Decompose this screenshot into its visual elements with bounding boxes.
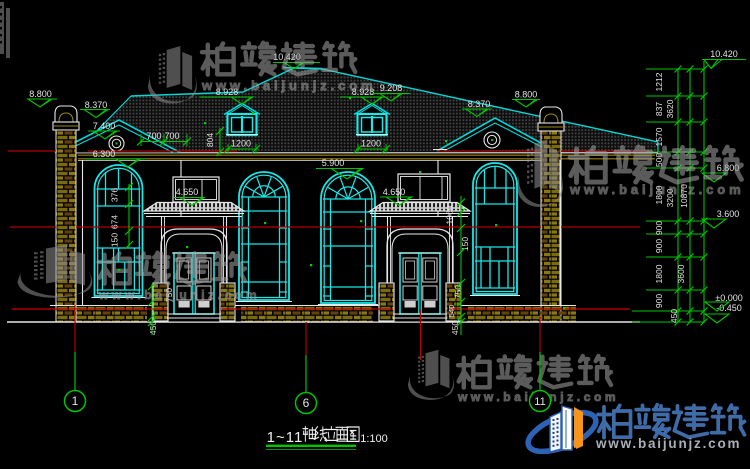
svg-text:1:100: 1:100 <box>360 433 388 445</box>
svg-text:450: 450 <box>148 321 158 335</box>
svg-text:804: 804 <box>205 133 215 147</box>
svg-text:8.800: 8.800 <box>29 89 52 99</box>
svg-text:1~11: 1~11 <box>267 429 304 446</box>
svg-text:3600: 3600 <box>676 264 686 283</box>
svg-text:900: 900 <box>654 239 664 253</box>
svg-text:9.208: 9.208 <box>380 83 403 93</box>
svg-text:900: 900 <box>654 221 664 235</box>
svg-text:6.300: 6.300 <box>93 149 116 159</box>
svg-text:1212: 1212 <box>654 72 664 91</box>
svg-text:8.370: 8.370 <box>85 100 108 110</box>
svg-text:5.900: 5.900 <box>322 158 345 168</box>
svg-text:1060: 1060 <box>445 205 455 224</box>
svg-text:6: 6 <box>303 396 310 410</box>
svg-text:1200: 1200 <box>361 139 381 149</box>
svg-text:674: 674 <box>110 215 120 229</box>
svg-text:1570: 1570 <box>654 127 664 146</box>
svg-text:700: 700 <box>146 131 161 141</box>
svg-text:4.650: 4.650 <box>383 187 406 197</box>
svg-text:www.baijunjz.com: www.baijunjz.com <box>98 288 260 302</box>
svg-text:837: 837 <box>654 102 664 116</box>
svg-text:3.600: 3.600 <box>717 209 740 219</box>
svg-text:www.baijunjz.com: www.baijunjz.com <box>595 436 741 451</box>
svg-text:1: 1 <box>72 394 79 408</box>
svg-text:8.800: 8.800 <box>515 90 538 100</box>
svg-text:376: 376 <box>110 188 120 202</box>
svg-text:11: 11 <box>534 396 545 408</box>
svg-text:8.370: 8.370 <box>468 99 491 109</box>
svg-text:1200: 1200 <box>231 139 251 149</box>
svg-text:-0.450: -0.450 <box>716 303 742 313</box>
svg-text:450: 450 <box>450 321 460 335</box>
svg-text:4.650: 4.650 <box>176 187 199 197</box>
svg-text:www.baijunjz.com: www.baijunjz.com <box>569 182 745 197</box>
svg-text:10.420: 10.420 <box>710 49 738 59</box>
svg-text:www.baijunjz.com: www.baijunjz.com <box>201 78 377 93</box>
svg-text:1800: 1800 <box>654 264 664 283</box>
svg-text:900: 900 <box>654 294 664 308</box>
svg-text:7.400: 7.400 <box>93 121 116 131</box>
svg-text:3620: 3620 <box>665 99 675 118</box>
svg-text:540: 540 <box>447 305 456 318</box>
svg-text:150: 150 <box>110 233 120 247</box>
svg-text:450: 450 <box>669 309 679 323</box>
